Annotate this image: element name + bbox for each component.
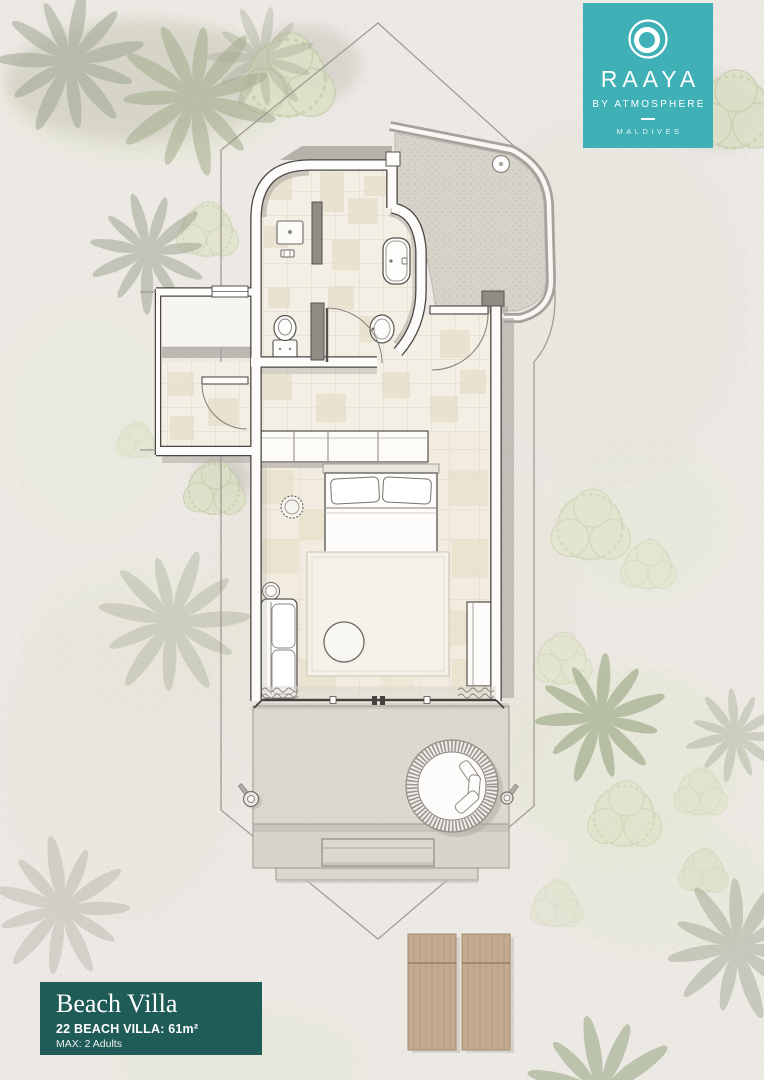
brand-tagline: BY ATMOSPHERE [590,99,705,110]
toilet [273,316,297,359]
wall-cap [386,152,400,166]
deck-terrace [238,706,518,883]
entry-room-door-leaf [202,377,248,384]
ottoman [324,622,364,662]
rug [307,552,449,676]
deck-lower-platform [276,868,478,880]
wc-partition [311,303,324,360]
brand-logo-card: RAAYA BY ATMOSPHERE MALDIVES [583,3,713,148]
villa-capacity: MAX: 2 Adults [56,1038,248,1050]
headboard [323,464,439,473]
deck-steps [322,839,434,866]
brand-country: MALDIVES [614,127,683,136]
raaya-rings-icon [626,17,670,61]
villa-info-panel: Beach Villa 22 BEACH VILLA: 61m² MAX: 2 … [40,982,262,1055]
beach-villa-floorplan-page: RAAYA BY ATMOSPHERE MALDIVES Beach Villa… [0,0,764,1080]
entry-porch-floor [160,292,251,347]
stool [281,496,303,518]
shower-partition [312,202,322,264]
bathtub [383,238,410,284]
console-bench [467,602,493,686]
pillow [330,477,379,504]
villa-title: Beach Villa [56,989,248,1019]
villa-spec: 22 BEACH VILLA: 61m² [56,1022,248,1036]
floor-plan-drawing [0,0,764,1080]
wardrobe [258,431,428,462]
sun-lounger [408,934,460,1053]
bath-tap [402,258,407,264]
brand-divider [641,118,655,120]
shower-mixer [281,250,294,257]
sofa-cushion [272,604,295,648]
entry-door-leaf [430,306,488,314]
sun-lounger [462,934,514,1053]
brand-name: RAAYA [596,66,701,93]
pillow [382,477,431,504]
wash-basin [370,315,394,343]
wall-cap [482,291,504,306]
